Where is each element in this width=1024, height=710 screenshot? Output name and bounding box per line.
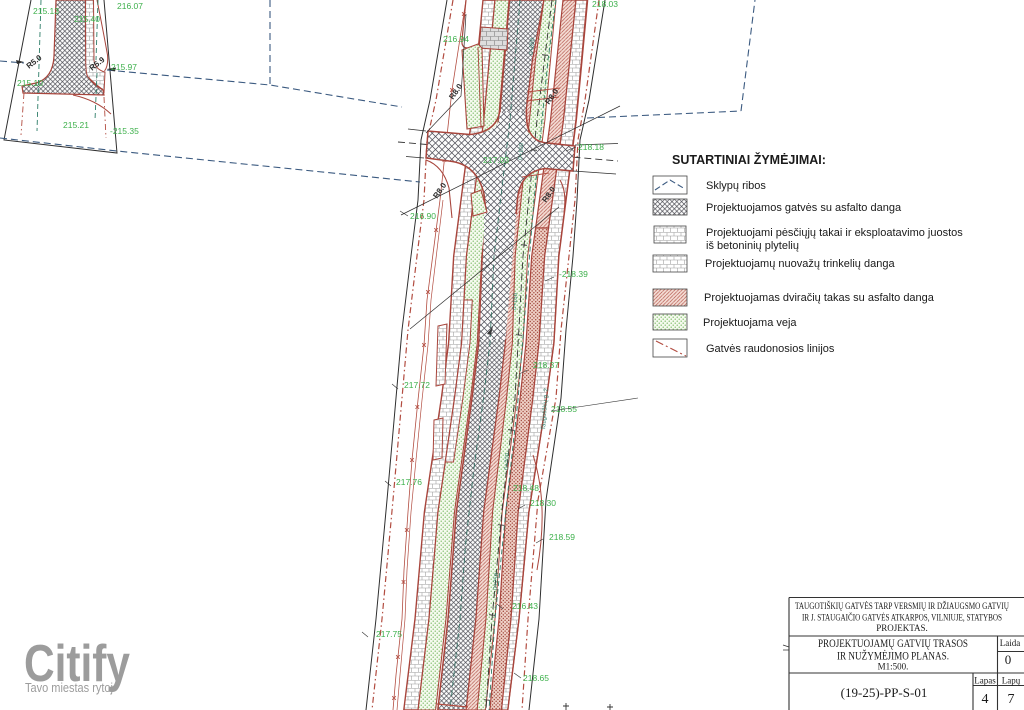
svg-text:218.03: 218.03 [592,0,618,9]
svg-text:(19-25)-PP-S-01: (19-25)-PP-S-01 [841,685,928,700]
svg-text:-218.39: -218.39 [559,269,588,279]
svg-text:Projektuojami pėsčiųjų takai i: Projektuojami pėsčiųjų takai ir eksploat… [706,227,963,239]
svg-text:M1:500.: M1:500. [878,662,909,672]
svg-text:215.13: 215.13 [33,6,59,16]
svg-text:PROJEKTAS.: PROJEKTAS. [876,623,928,633]
svg-text:218.30: 218.30 [530,498,556,508]
svg-text:216.90: 216.90 [410,211,436,221]
svg-text:217.75: 217.75 [376,629,402,639]
svg-text:iš betoninių plytelių: iš betoninių plytelių [706,240,799,252]
svg-text:215.97: 215.97 [111,62,137,72]
svg-text:218.18: 218.18 [578,142,604,152]
svg-text:Projektuojamas dviračių takas: Projektuojamas dviračių takas su asfalto… [704,292,935,304]
svg-text:Projektuojamos gatvės su asfal: Projektuojamos gatvės su asfalto danga [706,202,902,214]
svg-text:218.37: 218.37 [533,360,559,370]
svg-text:7: 7 [1008,692,1015,707]
svg-text:216.43: 216.43 [512,601,538,611]
svg-text:216.94: 216.94 [443,34,469,44]
svg-text:Sklypų ribos: Sklypų ribos [706,180,766,192]
svg-text:215.10: 215.10 [17,78,43,88]
svg-text:Laida: Laida [1000,638,1021,648]
svg-text:SUTARTINIAI ŽYMĖJIMAI:: SUTARTINIAI ŽYMĖJIMAI: [672,152,826,167]
svg-text:218.65: 218.65 [523,673,549,683]
svg-text:Projektuojamų nuovažų trinkeli: Projektuojamų nuovažų trinkelių danga [705,258,895,270]
svg-text:-215.35: -215.35 [110,126,139,136]
svg-text:215.40: 215.40 [74,14,100,24]
svg-text:0: 0 [1005,652,1012,667]
svg-text:Lapas: Lapas [974,676,996,686]
svg-text:218.59: 218.59 [549,532,575,542]
svg-text:217.76: 217.76 [396,477,422,487]
svg-text:Projektuojama veja: Projektuojama veja [703,317,797,329]
svg-text:TAUGOTIŠKIŲ GATVĖS TARP VERSMI: TAUGOTIŠKIŲ GATVĖS TARP VERSMIŲ IR DŽIAU… [795,601,1009,611]
svg-text:0+050: 0+050 [529,37,536,55]
svg-text:IR NUŽYMĖJIMO PLANAS.: IR NUŽYMĖJIMO PLANAS. [837,649,949,663]
svg-text:0+250: 0+250 [493,572,500,590]
svg-text:0+100: 0+100 [518,142,525,160]
svg-text:218.48: 218.48 [513,483,539,493]
svg-text:0+200: 0+200 [504,452,511,470]
svg-text:4: 4 [982,692,989,707]
svg-text:IR J. STAUGAIČIO GATVĖS ATKARP: IR J. STAUGAIČIO GATVĖS ATKARPOS, VILNIU… [802,613,1002,623]
svg-text:Lapų: Lapų [1002,676,1021,686]
svg-text:217.03: 217.03 [483,155,509,165]
svg-text:217.72: 217.72 [404,380,430,390]
svg-text:Gatvės raudonosios linijos: Gatvės raudonosios linijos [706,343,835,355]
svg-text:215.21: 215.21 [63,120,89,130]
svg-text:0+150: 0+150 [512,292,519,310]
svg-text:216.07: 216.07 [117,1,143,11]
svg-text:Tavo miestas rytoj: Tavo miestas rytoj [25,680,113,695]
